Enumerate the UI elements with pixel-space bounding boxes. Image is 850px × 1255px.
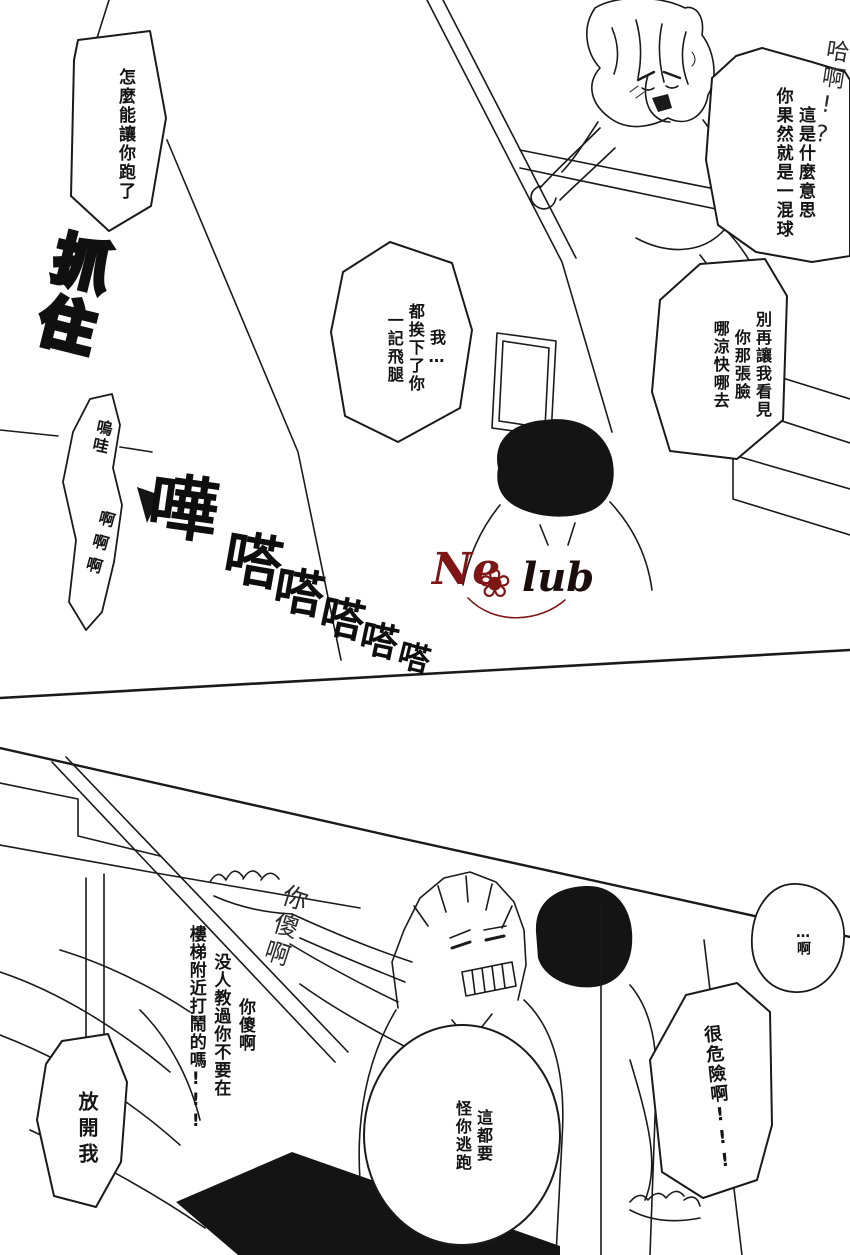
blond-eyebrows (638, 72, 680, 80)
blond-hair-outline (587, 0, 714, 127)
rose-icon: ❀ (478, 564, 512, 604)
sfx-clatter-char: 嘩 (143, 469, 222, 548)
blond2-angry-eyes (452, 936, 504, 948)
panel-bottom-art (0, 748, 850, 1255)
blond-shirt (562, 120, 731, 250)
blond2-sleeve (290, 944, 404, 1046)
bubble-face-text: 別再讓我看見 你那張臉 哪涼快哪去 (668, 285, 773, 445)
blond-eyes-closed (642, 86, 678, 90)
bubble-blame-text: 這都要 怪你逃跑 (432, 1068, 494, 1203)
manga-page: 怎麼能讓你跑了 哈啊!? 這是什麼意思 你果然就是一混球 我… 都挨下了你 一記… (0, 0, 850, 1255)
scanlation-watermark: Ne ❀ lub (426, 542, 596, 626)
blond-open-mouth (652, 94, 672, 112)
bubble-letgo-text: 放開我 (70, 1065, 100, 1195)
dark2-body-arm (630, 985, 656, 1255)
dark-hair-head-top (497, 419, 614, 516)
blond-arm (540, 128, 615, 200)
gritted-teeth (462, 962, 516, 996)
dark2-hand-on-floor (630, 1191, 700, 1220)
blond-hand-on-rail (531, 186, 556, 209)
wall-corner-upper-line (97, 0, 109, 38)
bubble-meaning-text: 這是什麼意思 你果然就是一混球 (738, 84, 816, 242)
scold-text: 你傻啊 没人教過你不要在 樓梯附近打鬧的嗎!!! (165, 925, 257, 1125)
watermark-text-lub: lub (522, 554, 594, 601)
sfx-clatter-char: 嗒 (270, 564, 328, 622)
sfx-clatter-char: 嗒 (356, 618, 401, 663)
picture-frame-inner (499, 341, 549, 428)
bubble-kick-text: 我… 都挨下了你 一記飛腿 (352, 268, 447, 428)
dark2-hair (536, 886, 632, 987)
bubble-escape-text: 怎麼能讓你跑了 (100, 52, 136, 217)
bubble-ah-text: …啊 (786, 904, 812, 976)
stair-railing-inner-line (443, 0, 576, 258)
